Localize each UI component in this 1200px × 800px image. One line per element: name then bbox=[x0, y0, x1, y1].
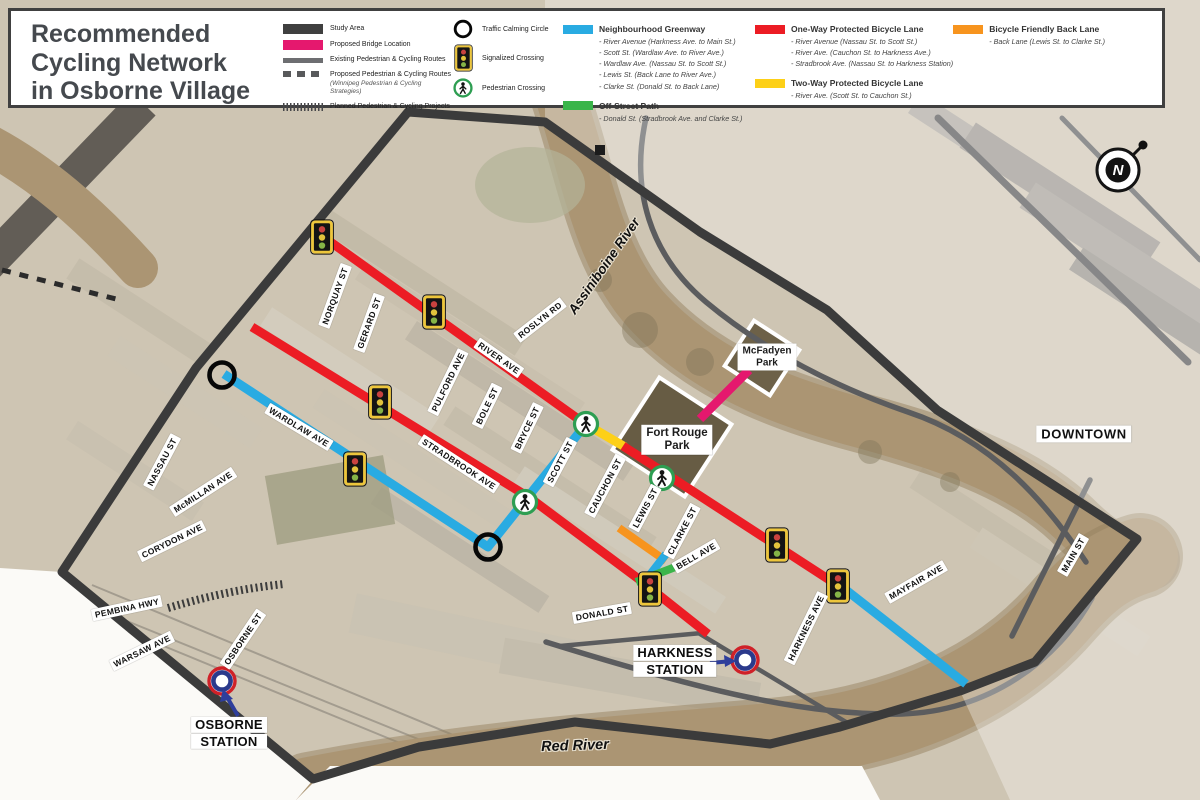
legend-protected-lane-column: One-Way Protected Bicycle Lane River Ave… bbox=[755, 11, 953, 105]
legend-route-item: River Ave. (Scott St. to Cauchon St.) bbox=[791, 90, 953, 101]
legend-panel: Recommended Cycling Network in Osborne V… bbox=[8, 8, 1165, 108]
back-lane-swatch bbox=[953, 25, 983, 34]
pedestrian-crossing-icon bbox=[651, 467, 674, 490]
legend-route-item: Wardlaw Ave. (Nassau St. to Scott St.) bbox=[599, 58, 755, 69]
legend-item-signalized-crossing: Signalized Crossing bbox=[451, 44, 563, 72]
legend-route-item: River Avenue (Nassau St. to Scott St.) bbox=[791, 36, 953, 47]
greenway-swatch bbox=[563, 25, 593, 34]
proposed-routes-swatch bbox=[283, 71, 323, 77]
legend-item-proposed-routes: Proposed Pedestrian & Cycling Routes (Wi… bbox=[283, 71, 451, 97]
signalized-crossing-icon bbox=[344, 452, 367, 486]
legend-item-planned-projects: Planned Pedestrian & Cycling Projects bbox=[283, 103, 451, 112]
compass-needle-dot bbox=[1139, 141, 1148, 150]
legend-route-item: River Avenue (Harkness Ave. to Main St.) bbox=[599, 36, 755, 47]
legend-route-item: River Ave. (Cauchon St. to Harkness Ave.… bbox=[791, 47, 953, 58]
legend-route-item: Stradbrook Ave. (Nassau St. to Harkness … bbox=[791, 58, 953, 69]
legend-route-item: Lewis St. (Back Lane to River Ave.) bbox=[599, 69, 755, 80]
signalized-crossing-icon bbox=[827, 569, 850, 603]
pedestrian-crossing-icon bbox=[514, 491, 537, 514]
signalized-crossing-icon bbox=[369, 385, 392, 419]
page-title: Recommended Cycling Network in Osborne V… bbox=[11, 11, 283, 105]
two-way-lane-swatch bbox=[755, 79, 785, 88]
legend-back-lane-column: Bicycle Friendly Back Lane Back Lane (Le… bbox=[953, 11, 1162, 105]
legend-group-off-street-path: Off-Street Path Donald St. (Stradbrook A… bbox=[563, 101, 755, 124]
compass-north-letter: N bbox=[1113, 162, 1125, 179]
signalized-crossing-icon bbox=[766, 528, 789, 562]
pedestrian-crossing-icon bbox=[575, 413, 598, 436]
photo-edge-white-bottom bbox=[296, 766, 880, 800]
existing-routes-swatch bbox=[283, 58, 323, 63]
signalized-crossing-icon bbox=[639, 572, 662, 606]
signalized-crossing-icon bbox=[451, 44, 475, 72]
legend-group-back-lane: Bicycle Friendly Back Lane Back Lane (Le… bbox=[953, 24, 1162, 47]
legend-item-existing-routes: Existing Pedestrian & Cycling Routes bbox=[283, 56, 451, 65]
osborne-station-marker bbox=[209, 668, 235, 694]
off-street-path-swatch bbox=[563, 101, 593, 110]
legend-greenway-column: Neighbourhood Greenway River Avenue (Har… bbox=[563, 11, 755, 105]
legend-item-bridge: Proposed Bridge Location bbox=[283, 40, 451, 50]
signalized-crossing-icon bbox=[423, 295, 446, 329]
park-green-top bbox=[475, 147, 585, 223]
legend-route-item: Clarke St. (Donald St. to Back Lane) bbox=[599, 81, 755, 92]
legend-route-item: Back Lane (Lewis St. to Clarke St.) bbox=[989, 36, 1162, 47]
legend-group-two-way: Two-Way Protected Bicycle Lane River Ave… bbox=[755, 78, 953, 101]
planned-projects-swatch bbox=[283, 103, 323, 111]
legend-group-greenway: Neighbourhood Greenway River Avenue (Har… bbox=[563, 24, 755, 92]
study-area-swatch bbox=[283, 24, 323, 34]
traffic-calming-circle-icon bbox=[451, 19, 475, 39]
legend-item-study-area: Study Area bbox=[283, 24, 451, 34]
one-way-lane-swatch bbox=[755, 25, 785, 34]
legend-item-pedestrian-crossing: Pedestrian Crossing bbox=[451, 77, 563, 99]
pedestrian-crossing-icon bbox=[451, 77, 475, 99]
legend-group-one-way: One-Way Protected Bicycle Lane River Ave… bbox=[755, 24, 953, 69]
legend-area-column: Study Area Proposed Bridge Location Exis… bbox=[283, 11, 451, 105]
legend-route-item: Scott St. (Wardlaw Ave. to River Ave.) bbox=[599, 47, 755, 58]
map-marker-square bbox=[595, 145, 605, 155]
map-canvas: N NORQUAY STGERARD STROSLYN RDRIVER AVEP… bbox=[0, 0, 1200, 800]
signalized-crossing-icon bbox=[311, 220, 334, 254]
legend-route-item: Donald St. (Stradbrook Ave. and Clarke S… bbox=[599, 113, 755, 124]
bridge-swatch bbox=[283, 40, 323, 50]
legend-point-column: Traffic Calming Circle Signalized Crossi… bbox=[451, 11, 563, 105]
legend-item-traffic-calming: Traffic Calming Circle bbox=[451, 19, 563, 39]
harkness-station-marker bbox=[732, 647, 758, 673]
